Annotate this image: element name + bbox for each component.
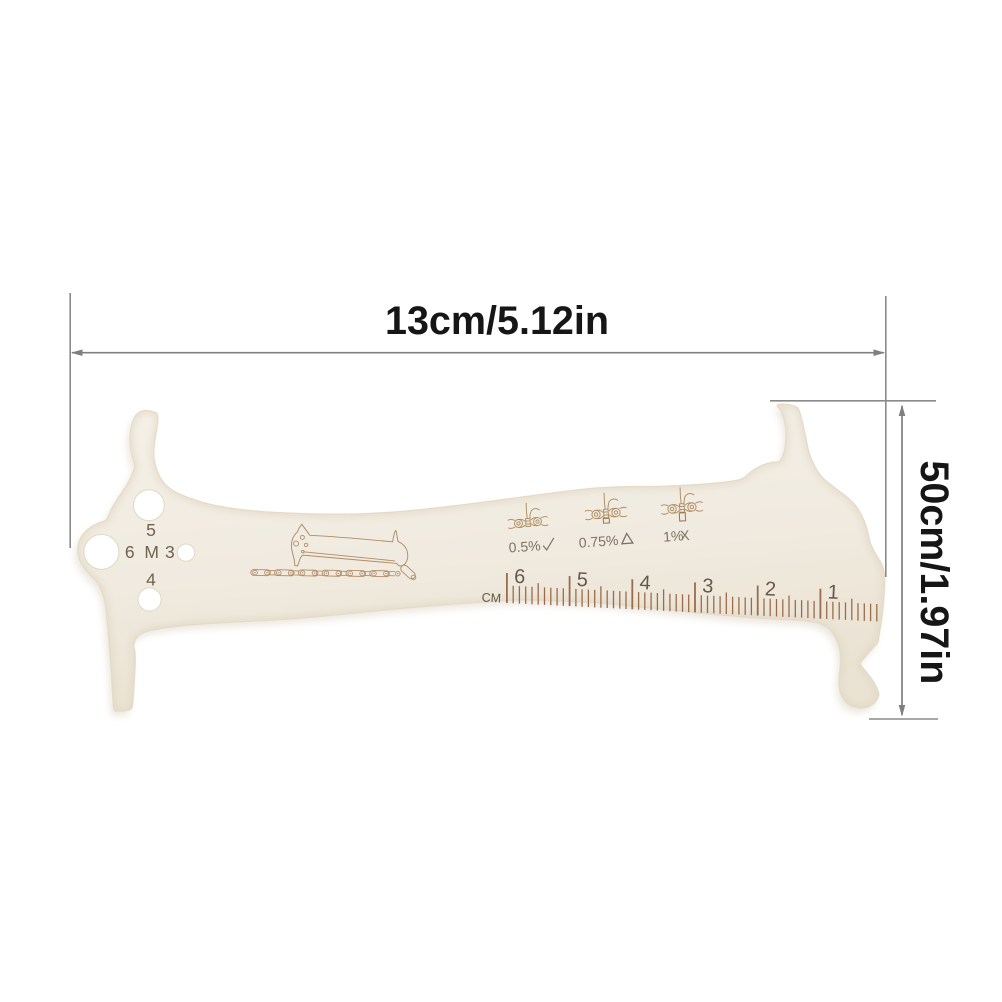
svg-text:5: 5 (146, 520, 156, 540)
svg-text:0.5%: 0.5% (508, 537, 541, 555)
svg-text:50cm/1.97in: 50cm/1.97in (912, 460, 956, 684)
svg-text:3: 3 (702, 575, 714, 598)
svg-text:X: X (680, 527, 691, 544)
svg-text:3: 3 (165, 542, 175, 562)
svg-text:0.75%: 0.75% (578, 532, 619, 551)
svg-text:6: 6 (514, 566, 526, 589)
svg-text:13cm/5.12in: 13cm/5.12in (385, 299, 609, 343)
svg-text:4: 4 (639, 572, 651, 595)
svg-text:CM: CM (481, 591, 501, 606)
svg-text:4: 4 (146, 570, 156, 590)
svg-text:2: 2 (764, 578, 776, 601)
svg-text:M: M (144, 542, 159, 562)
svg-text:1: 1 (827, 581, 839, 604)
svg-text:5: 5 (576, 569, 588, 592)
svg-text:6: 6 (125, 542, 135, 562)
